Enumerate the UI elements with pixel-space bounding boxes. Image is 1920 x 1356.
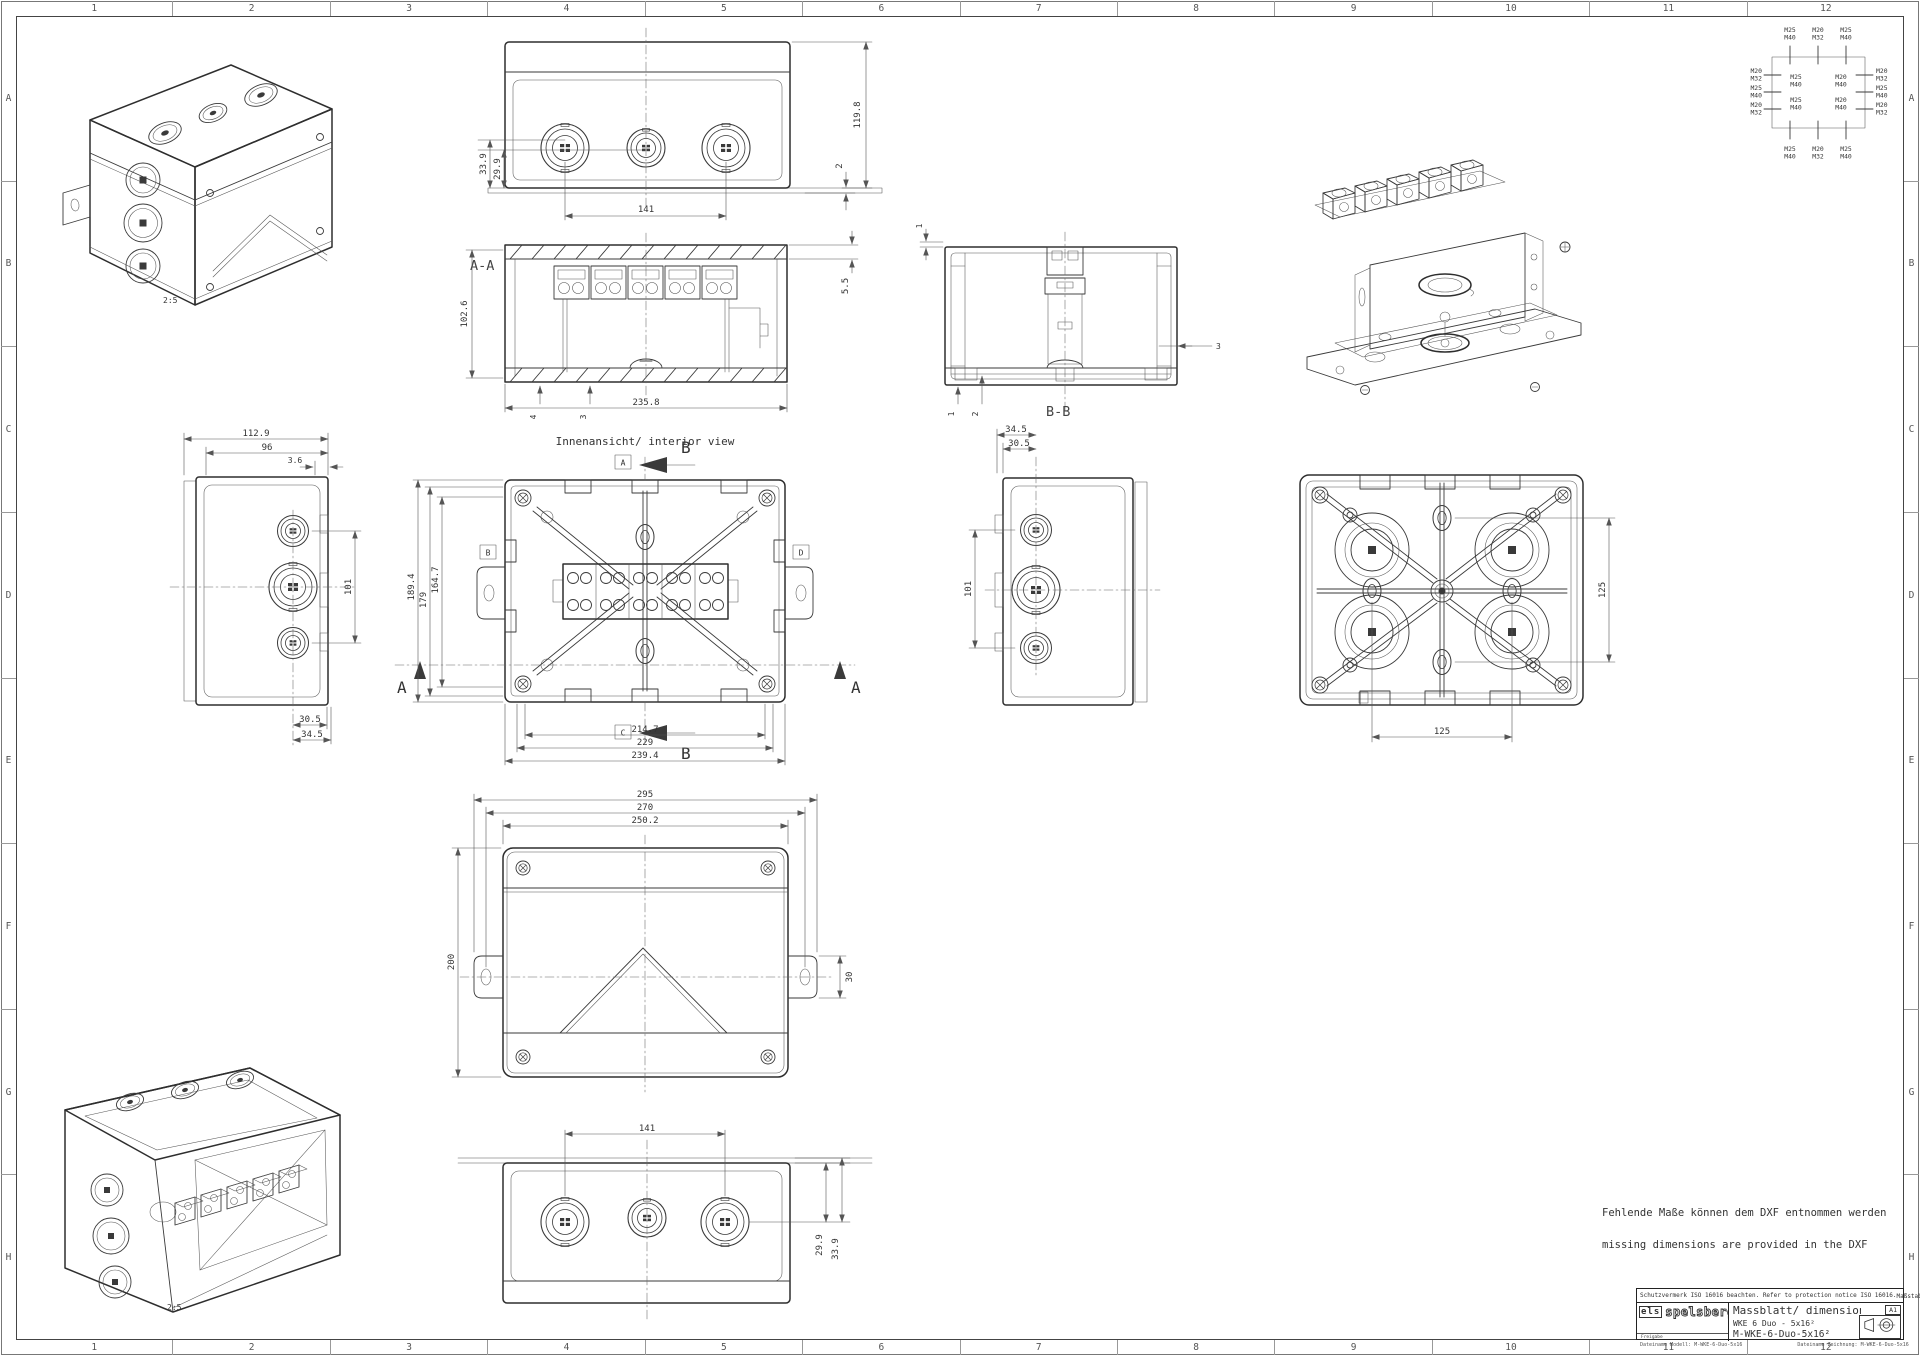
title-block: Schutzvermerk ISO 16016 beachten. Refer … <box>1636 1288 1904 1340</box>
lid-interior-view: 125 125 <box>1275 430 1695 770</box>
cut-label: A <box>621 459 626 468</box>
side-view-right: 34.5 30.5 101 <box>945 415 1205 765</box>
first-angle-projection-icon <box>1859 1315 1901 1339</box>
frame-row-label: G <box>1904 1010 1919 1176</box>
frame-row-label: A <box>1 16 16 182</box>
logo-els-mark: els <box>1639 1306 1662 1318</box>
dim-offset-b: 30.5 <box>1008 439 1030 449</box>
frame-col-label: 8 <box>1118 1340 1275 1355</box>
frame-col-label: 3 <box>331 1 488 16</box>
terminal-block <box>553 564 738 619</box>
knockout-size: M40 <box>1784 34 1796 42</box>
dim-height-mid: 179 <box>419 592 429 608</box>
dim-wall: 3 <box>579 414 588 419</box>
knockout-size: M32 <box>1876 75 1888 83</box>
knockout-size: M32 <box>1812 34 1824 42</box>
terminal-strip <box>1323 160 1483 219</box>
knockout-size: M40 <box>1840 34 1852 42</box>
frame-col-label: 10 <box>1433 1 1590 16</box>
knockout-size: M32 <box>1876 109 1888 117</box>
dimension-sheet: 123456789101112 123456789101112 ABCDEFGH… <box>0 0 1920 1356</box>
terminal-block-iso <box>175 1165 307 1225</box>
section-view-b-b: 1 1 2 3 B-B <box>910 218 1240 423</box>
scale-caption: Maßstab: <box>1896 1293 1920 1300</box>
knockout-size: M40 <box>1790 104 1802 112</box>
note-german: Fehlende Maße können dem DXF entnommen w… <box>1602 1207 1886 1219</box>
dim-inner-height: 102.6 <box>460 300 470 327</box>
frame-row-label: C <box>1904 347 1919 513</box>
frame-col-label: 1 <box>16 1 173 16</box>
dim-lid-thickness: 5.5 <box>841 278 851 294</box>
frame-col-label: 9 <box>1275 1 1432 16</box>
section-view-a-a: A-A <box>430 228 870 423</box>
orthographic-bottom-view: 141 29.9 33.9 <box>450 1110 880 1325</box>
cut-arrow-label: A <box>397 678 407 697</box>
frame-col-label: 6 <box>803 1 960 16</box>
drawing-number: M-WKE-6-Duo-5x16² <box>1733 1329 1857 1340</box>
frame-col-label: 5 <box>646 1 803 16</box>
exploded-assembly-view <box>1295 85 1595 415</box>
product-name: WKE 6 Duo - 5x16² <box>1733 1319 1857 1328</box>
cut-arrow-label: B <box>681 438 691 457</box>
cut-label: D <box>799 549 804 558</box>
dim-lip: 3.6 <box>288 456 303 465</box>
dim-width-outer: 295 <box>637 790 653 800</box>
knockout-size-chart: M25M40 M20M32 M25M40 M25M40 M20M32 M25M4… <box>1735 12 1920 177</box>
cut-label: B <box>486 549 491 558</box>
dim-center-offset-b: 29.9 <box>493 158 503 180</box>
document-title: Massblatt/ dimension sheet <box>1733 1304 1857 1317</box>
knockout-size: M32 <box>1750 109 1762 117</box>
frame-col-label: 4 <box>488 1 645 16</box>
mounting-bracket <box>1335 233 1557 357</box>
frame-col-label: 5 <box>646 1340 803 1355</box>
protection-notice: Schutzvermerk ISO 16016 beachten. Refer … <box>1640 1292 1896 1299</box>
dim-depth: 112.9 <box>242 429 269 439</box>
approval-label: Freigabe <box>1641 1335 1663 1340</box>
dim-boss-pitch-v: 125 <box>1598 582 1608 598</box>
scale-label: 2:5 <box>167 1303 182 1312</box>
dim-body: 96 <box>262 443 273 453</box>
frame-row-label: C <box>1 347 16 513</box>
dim-knockout-spacing: 141 <box>639 1124 655 1134</box>
dim-center-offset-a: 29.9 <box>815 1234 825 1256</box>
file-drawing: Dateiname Zeichnung: M-WKE-6-Duo-5x16 <box>1797 1342 1908 1348</box>
note-english: missing dimensions are provided in the D… <box>1602 1239 1886 1251</box>
dim-offset-a: 30.5 <box>299 715 321 725</box>
frame-row-label: E <box>1904 679 1919 845</box>
dim-center-offset-a: 33.9 <box>479 153 489 175</box>
frame-col-label: 4 <box>488 1340 645 1355</box>
scale-label: 2:5 <box>163 296 178 305</box>
dim-knockout-pitch: 101 <box>964 581 974 597</box>
dim-height: 119.8 <box>853 101 863 128</box>
spelsberg-logo: els spelsberg Freigabe <box>1637 1303 1729 1341</box>
frame-row-labels-right: ABCDEFGH <box>1904 16 1919 1340</box>
knockout-size: M32 <box>1750 75 1762 83</box>
scale-field: Maßstab: 1:2 <box>1896 1290 1920 1301</box>
dim-height-inner: 164.7 <box>431 566 441 593</box>
knockout-size: M40 <box>1750 92 1762 100</box>
dim-width-mid: 229 <box>637 738 653 748</box>
frame-row-label: H <box>1904 1175 1919 1340</box>
frame-col-label: 7 <box>961 1340 1118 1355</box>
cut-label: C <box>621 729 626 738</box>
dim-offset-b: 34.5 <box>301 730 323 740</box>
screws <box>1361 242 1571 395</box>
knockout-size: M40 <box>1876 92 1888 100</box>
dim-ear-height: 30 <box>845 972 855 983</box>
terminal-block-section <box>554 266 737 299</box>
view-title: Innenansicht/ interior view <box>556 435 735 448</box>
dim-width-inner: 250.2 <box>631 816 658 826</box>
knockout-size: M40 <box>1840 153 1852 161</box>
knockout-size: M40 <box>1790 81 1802 89</box>
frame-col-label: 6 <box>803 1340 960 1355</box>
frame-row-label: F <box>1 844 16 1010</box>
cut-arrow-label: A <box>851 678 861 697</box>
frame-col-label: 10 <box>1433 1340 1590 1355</box>
interior-view: Innenansicht/ interior view <box>385 425 895 800</box>
iso-view-closed-box: 2:5 <box>35 25 335 310</box>
logo-wordmark: spelsberg <box>1665 1305 1729 1319</box>
dim-knockout-spacing: 141 <box>638 205 654 215</box>
file-name-notes: Dateiname Modell: M-WKE-6-Duo-5x16 Datei… <box>1640 1342 1909 1348</box>
dim-offset-a: 34.5 <box>1005 425 1027 435</box>
lid-front-view: 295 270 250.2 200 30 <box>420 780 890 1100</box>
dim-height-outer: 189.4 <box>407 573 417 600</box>
orthographic-top-view: 141 119.8 2 33.9 29.9 <box>470 20 900 235</box>
frame-row-label: B <box>1 182 16 348</box>
sealing-grommet <box>1419 274 1474 352</box>
frame-row-label: G <box>1 1010 16 1176</box>
frame-row-label: F <box>1904 844 1919 1010</box>
dim-center-offset-b: 33.9 <box>831 1238 841 1260</box>
frame-row-label: E <box>1 679 16 845</box>
cut-arrow-label: B <box>681 744 691 763</box>
frame-col-label: 11 <box>1590 1 1747 16</box>
sheet-format-badge: A1 <box>1885 1305 1901 1315</box>
dim-knockout-pitch: 101 <box>344 579 354 595</box>
knockout-size: M40 <box>1784 153 1796 161</box>
dim-boss-pitch-h: 125 <box>1434 727 1450 737</box>
frame-col-label: 8 <box>1118 1 1275 16</box>
dim-rib: 4 <box>529 414 538 419</box>
file-model: Dateiname Modell: M-WKE-6-Duo-5x16 <box>1640 1342 1742 1348</box>
dim-height: 200 <box>447 954 457 970</box>
frame-row-label: H <box>1 1175 16 1340</box>
frame-col-label: 7 <box>961 1 1118 16</box>
dim-base-width: 235.8 <box>632 398 659 408</box>
frame-row-label: D <box>1904 513 1919 679</box>
dim-wall: 3 <box>1216 342 1221 351</box>
knockout-size: M32 <box>1812 153 1824 161</box>
dim-width-outer: 239.4 <box>631 751 658 761</box>
frame-column-labels-top: 123456789101112 <box>16 1 1904 16</box>
dim-foot: 2 <box>835 163 845 168</box>
dim-width-mid: 270 <box>637 803 653 813</box>
knockout-size: M40 <box>1835 104 1847 112</box>
frame-col-label: 9 <box>1275 1340 1432 1355</box>
dim-lid-gap: 1 <box>915 223 924 228</box>
dxf-notes: Fehlende Maße können dem DXF entnommen w… <box>1602 1207 1886 1271</box>
knockout-size: M40 <box>1835 81 1847 89</box>
frame-row-label: D <box>1 513 16 679</box>
iso-view-open-box: 2:5 <box>45 1040 355 1345</box>
frame-row-labels-left: ABCDEFGH <box>1 16 16 1340</box>
frame-row-label: B <box>1904 182 1919 348</box>
frame-col-label: 2 <box>173 1 330 16</box>
section-label: A-A <box>470 258 494 274</box>
dim-width-inner: 214.7 <box>631 725 658 735</box>
